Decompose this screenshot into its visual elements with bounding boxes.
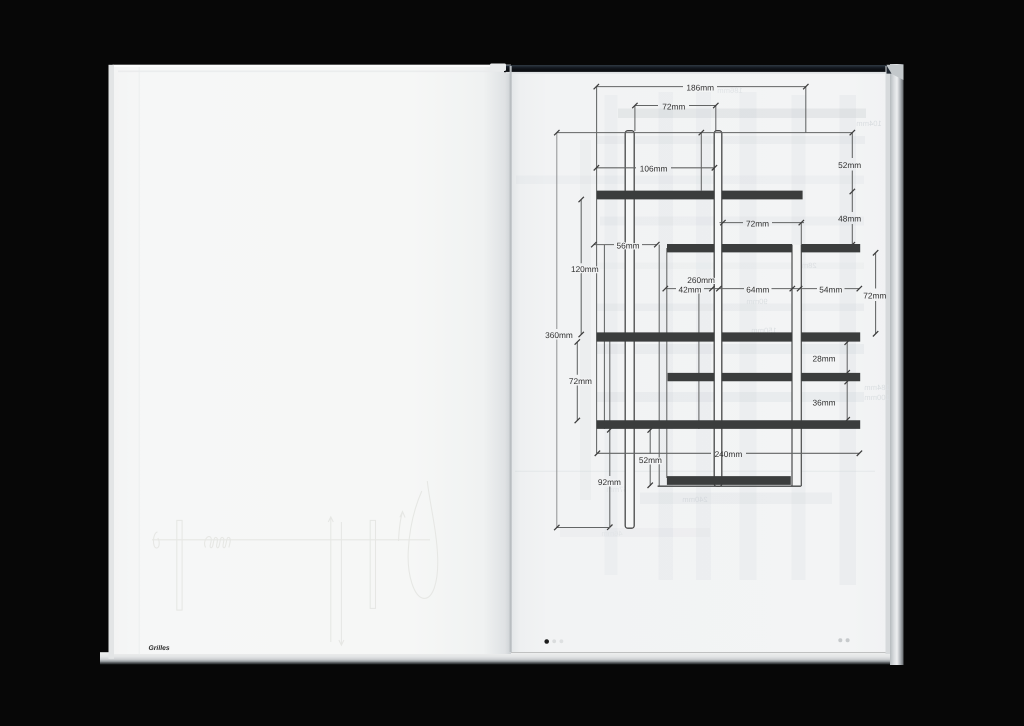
svg-text:240mm: 240mm [715,449,743,459]
svg-text:56mm: 56mm [616,240,639,250]
svg-text:46mm: 46mm [601,529,622,538]
svg-text:72mm: 72mm [863,291,886,301]
svg-text:184mm: 184mm [864,383,889,392]
svg-text:92mm: 92mm [598,477,621,487]
svg-text:360mm: 360mm [545,330,573,340]
svg-text:52mm: 52mm [639,455,662,465]
svg-text:48mm: 48mm [838,214,861,224]
svg-text:54mm: 54mm [819,284,842,294]
svg-text:240mm: 240mm [682,495,707,504]
svg-text:Grilles: Grilles [149,645,170,652]
svg-text:36mm: 36mm [812,398,835,408]
svg-text:42mm: 42mm [678,284,701,294]
svg-text:106mm: 106mm [640,164,668,174]
svg-text:52mm: 52mm [838,160,861,170]
svg-text:186mm: 186mm [686,83,714,93]
svg-text:90mm: 90mm [746,297,767,306]
svg-text:64mm: 64mm [746,284,769,294]
svg-text:100mm: 100mm [864,393,889,402]
svg-text:72mm: 72mm [662,101,685,111]
svg-text:120mm: 120mm [571,264,599,274]
svg-text:28mm: 28mm [812,354,835,364]
svg-text:72mm: 72mm [569,376,592,386]
svg-text:72mm: 72mm [746,218,769,228]
svg-text:104mm: 104mm [856,119,881,128]
svg-text:186mm: 186mm [717,86,742,95]
